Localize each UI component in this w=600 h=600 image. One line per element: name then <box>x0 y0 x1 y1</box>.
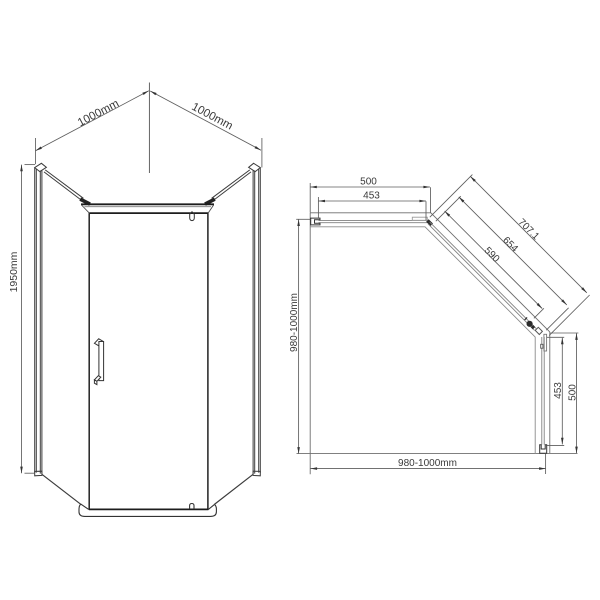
svg-text:453: 453 <box>363 190 380 201</box>
svg-text:500: 500 <box>360 177 377 188</box>
svg-text:1950mm: 1950mm <box>8 251 20 292</box>
svg-text:980-1000mm: 980-1000mm <box>289 293 300 352</box>
svg-text:654: 654 <box>500 235 520 255</box>
svg-text:590: 590 <box>482 245 502 265</box>
svg-text:500: 500 <box>567 384 578 401</box>
svg-text:1000mm: 1000mm <box>76 98 121 130</box>
svg-text:980-1000mm: 980-1000mm <box>398 458 457 469</box>
svg-text:707.1: 707.1 <box>516 217 542 243</box>
svg-text:1000mm: 1000mm <box>189 101 234 133</box>
svg-text:453: 453 <box>553 382 564 399</box>
